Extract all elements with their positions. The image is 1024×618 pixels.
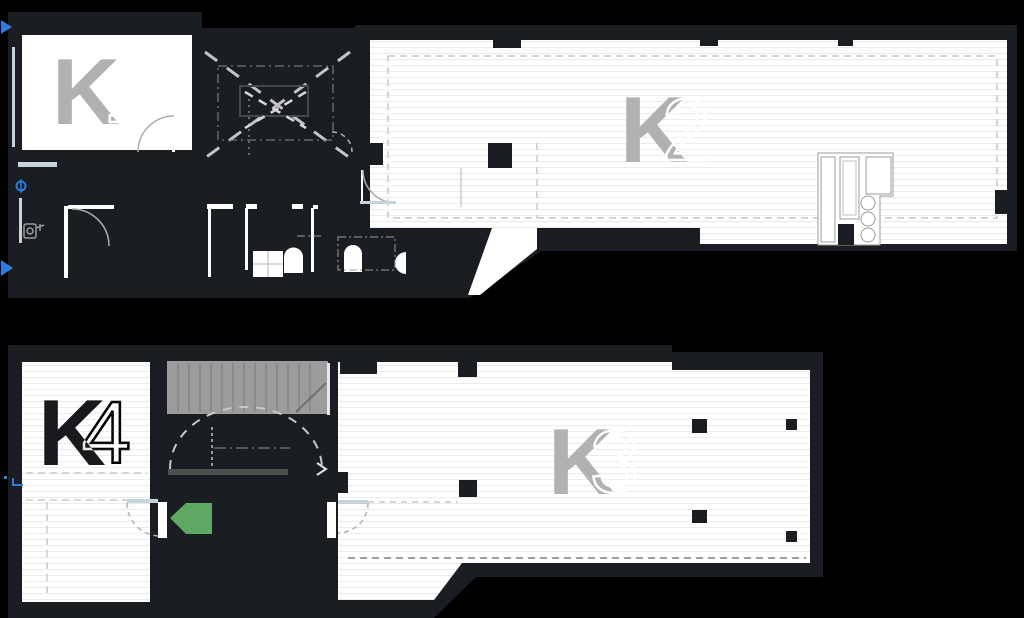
wall-opening	[292, 204, 303, 209]
column	[488, 143, 512, 168]
label-k2: K 2	[620, 77, 711, 182]
label-k1: K 1	[52, 39, 152, 144]
k3-door-head	[338, 500, 368, 504]
label-k3: K 3	[548, 409, 639, 514]
corridor-window-sill	[18, 162, 57, 167]
k2-door-sill	[360, 201, 396, 204]
kitchen-worktop	[866, 157, 891, 194]
wall-opening	[207, 204, 233, 209]
room-k1: K 1	[12, 35, 192, 152]
landing-edge	[168, 469, 288, 475]
stair-edge-slit	[327, 363, 330, 415]
wall-opening	[313, 205, 318, 209]
kitchen-burner	[861, 228, 875, 242]
floor-plan-drawing: K 1	[0, 0, 1024, 618]
label-k4: K 4	[38, 380, 131, 485]
k3-door-opening	[327, 502, 336, 538]
wall-pier	[458, 362, 477, 377]
kitchen-fridge	[821, 157, 835, 242]
wall-pier	[838, 40, 853, 46]
shaft-outer-wall	[195, 28, 367, 168]
column	[692, 510, 707, 523]
wall-pier	[340, 362, 377, 374]
column	[786, 419, 797, 430]
column	[786, 531, 797, 542]
wall-pier	[334, 472, 348, 493]
upper-floor-plan: K 1	[1, 12, 1017, 298]
level-marker-dot	[4, 476, 7, 479]
k1-window-left	[12, 47, 15, 147]
wall-pier	[995, 190, 1009, 214]
column	[692, 419, 707, 433]
k4-door-head	[127, 499, 158, 503]
lower-floor-plan: K 4	[4, 345, 823, 618]
k4-door-opening	[158, 502, 167, 538]
kitchen-burner	[861, 212, 875, 226]
k1-number: 1	[103, 42, 152, 141]
wall-pier	[493, 40, 521, 48]
wall-pier	[700, 40, 718, 46]
kitchen-burner	[861, 196, 875, 210]
toilet-icon	[284, 248, 303, 274]
kitchen-pier	[838, 224, 854, 245]
k4-number: 4	[82, 383, 131, 482]
k2-number: 2	[662, 80, 711, 179]
corridor-window-left	[19, 198, 22, 243]
wall-slit	[245, 208, 248, 270]
k1-door-leaf	[172, 116, 175, 152]
floor-plan-canvas: K 1	[0, 0, 1024, 618]
wall-slit	[311, 208, 314, 272]
wall-slit	[208, 208, 211, 277]
corridor-door-jamb	[64, 206, 68, 278]
room-k4: K 4	[4, 362, 150, 602]
column	[359, 143, 383, 165]
wall-opening	[246, 204, 257, 209]
toilet-icon	[344, 245, 362, 272]
column	[459, 480, 477, 497]
k3-number: 3	[590, 412, 639, 511]
